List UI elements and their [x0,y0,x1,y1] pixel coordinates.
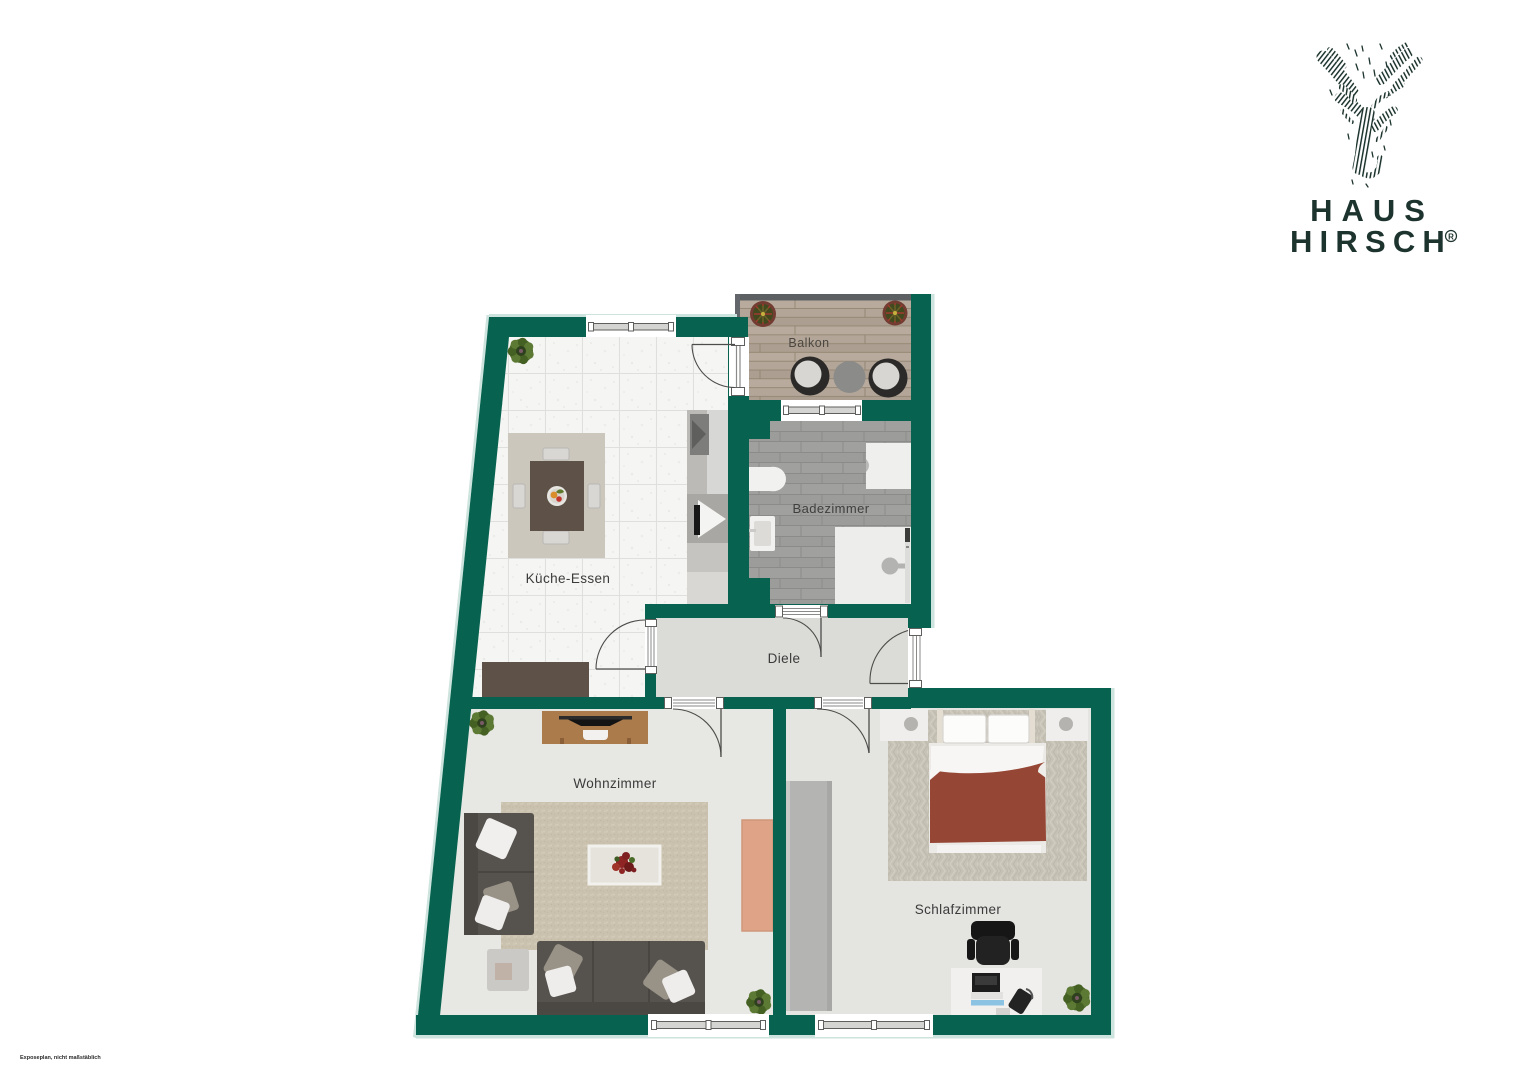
svg-text:Wohnzimmer: Wohnzimmer [573,776,656,791]
svg-text:Balkon: Balkon [788,336,829,350]
svg-text:Exposeplan, nicht maßstäblich: Exposeplan, nicht maßstäblich [20,1055,101,1061]
svg-text:Küche-Essen: Küche-Essen [526,571,611,586]
svg-text:Schlafzimmer: Schlafzimmer [915,902,1002,917]
svg-text:R: R [1448,233,1454,242]
svg-text:Diele: Diele [768,651,801,666]
svg-text:Badezimmer: Badezimmer [793,501,870,516]
svg-text:HIRSCH: HIRSCH [1290,224,1452,259]
svg-text:HAUS: HAUS [1310,193,1434,228]
